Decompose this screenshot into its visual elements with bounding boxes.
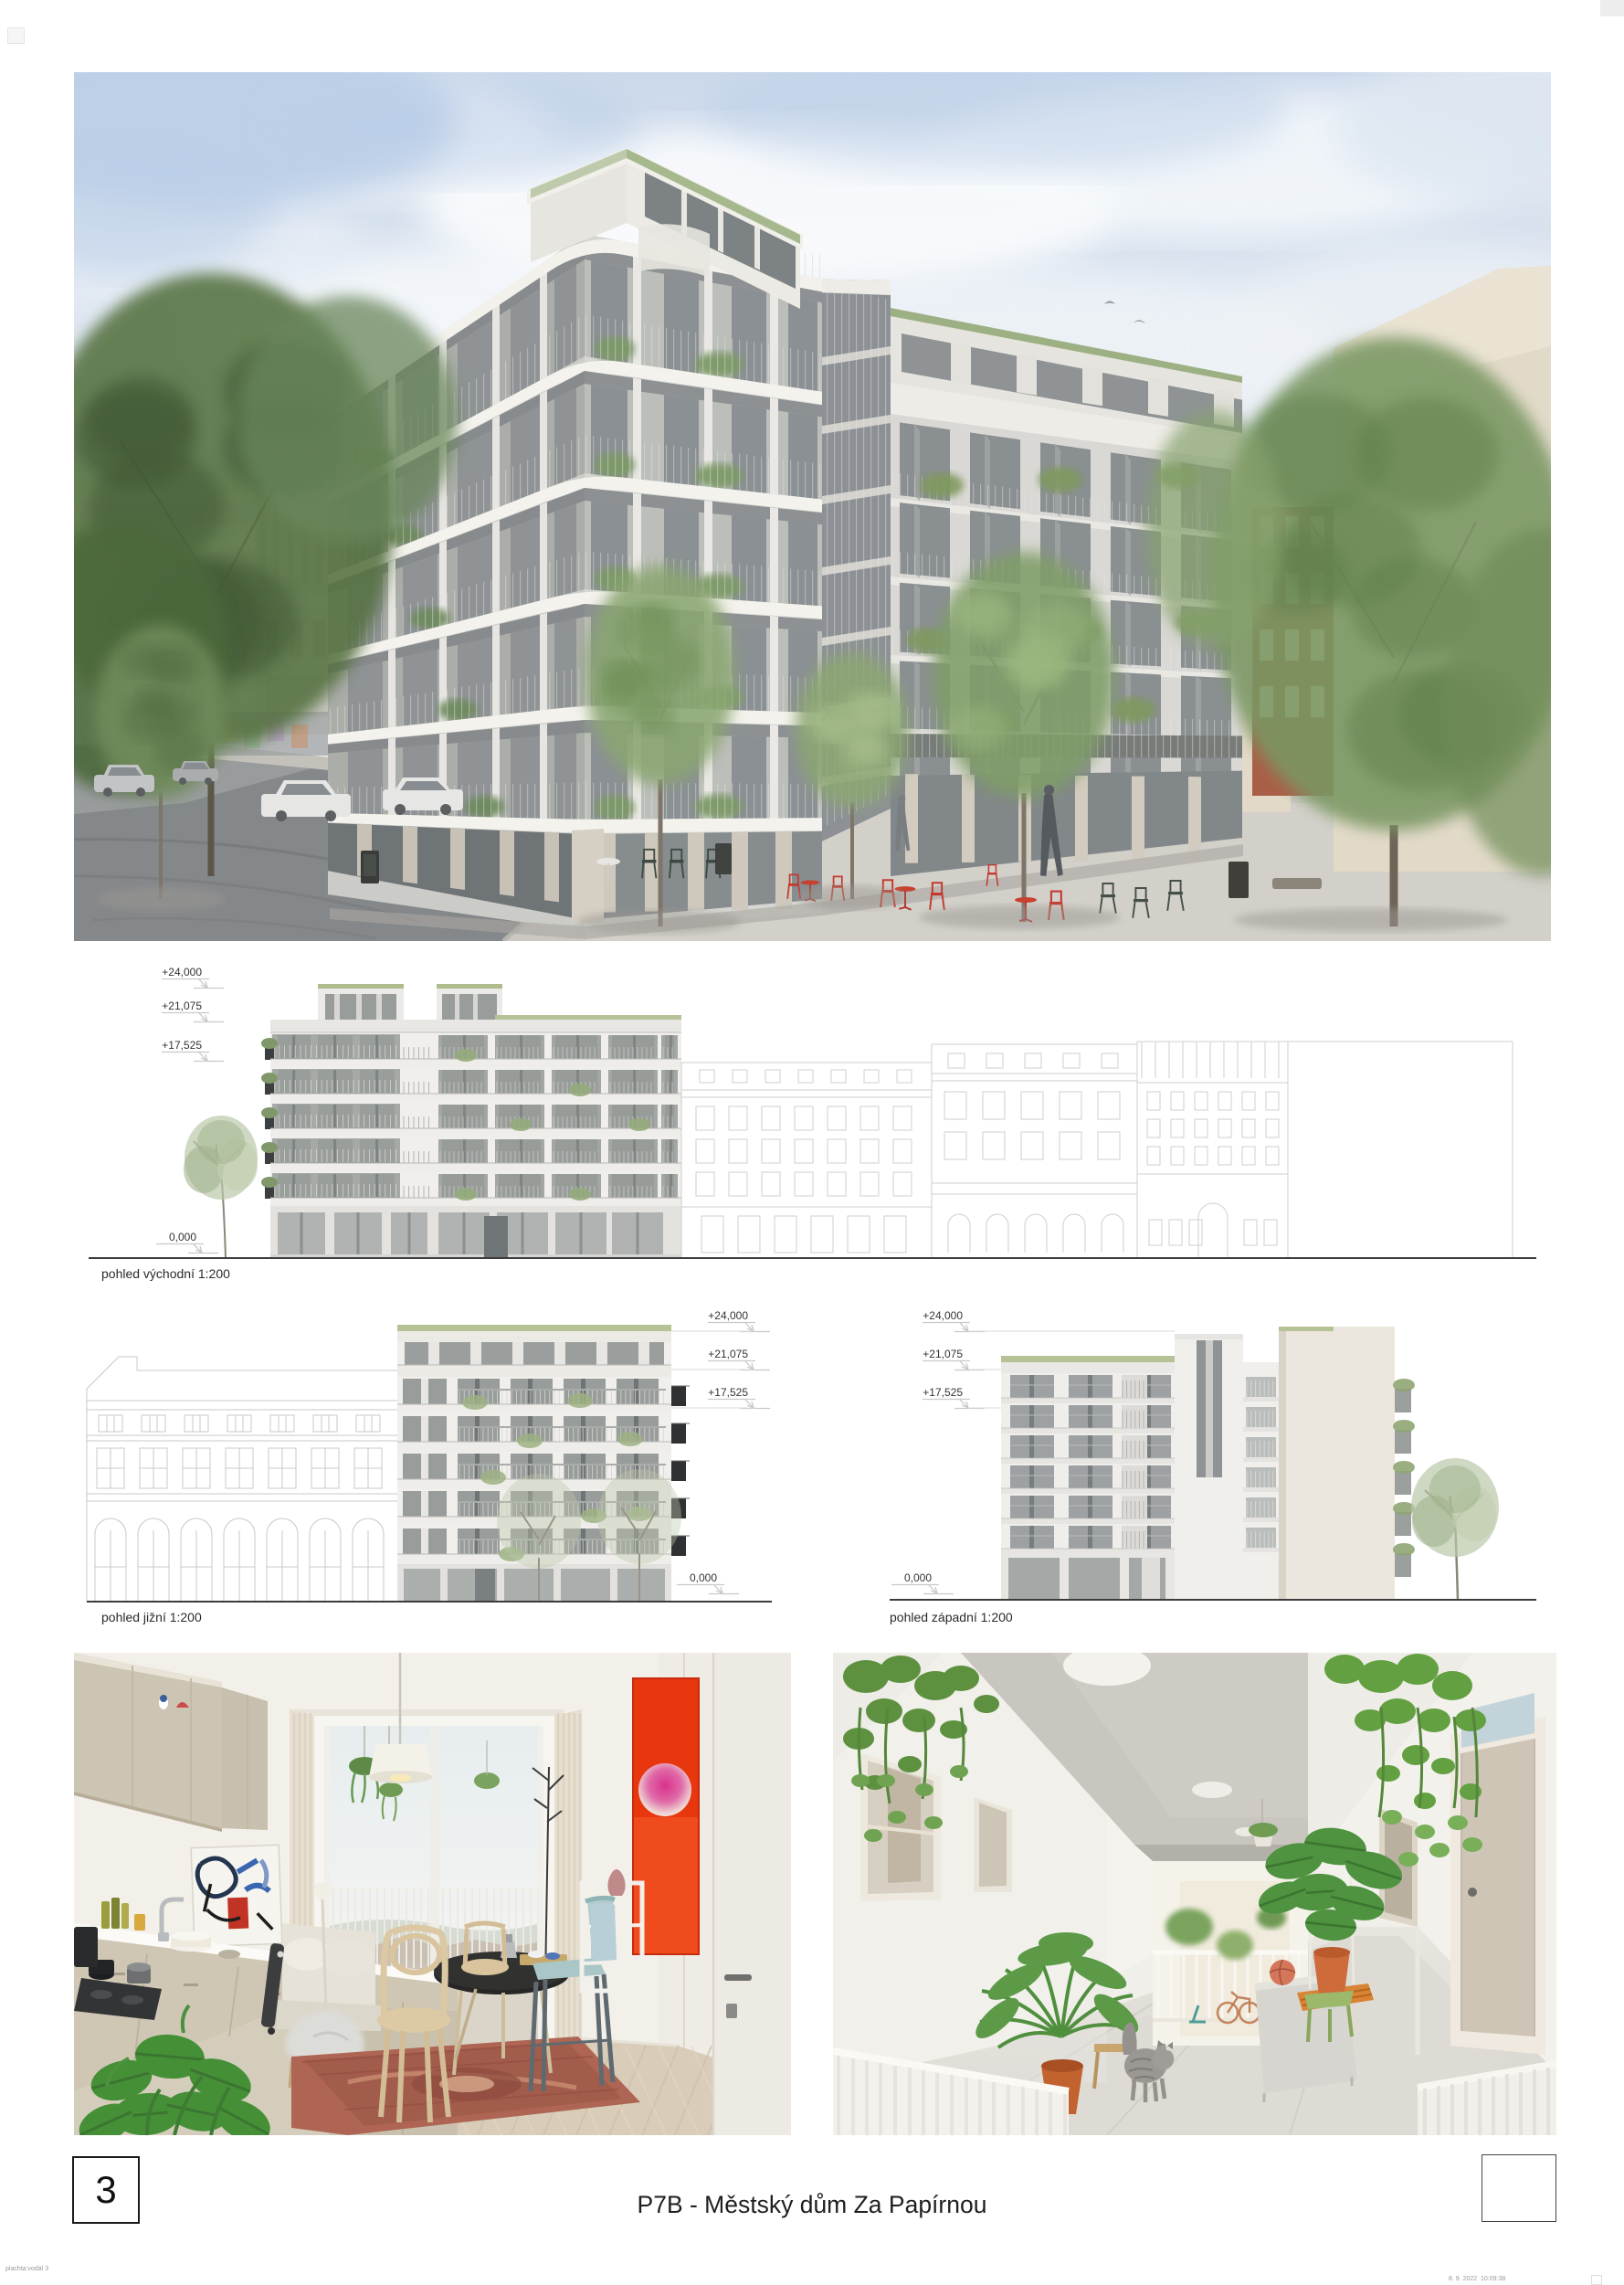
svg-text:+21,075: +21,075 <box>923 1348 963 1360</box>
svg-text:+17,525: +17,525 <box>708 1386 748 1399</box>
svg-text:pohled jižní 1:200: pohled jižní 1:200 <box>101 1610 202 1624</box>
svg-text:0,000: 0,000 <box>690 1571 717 1584</box>
svg-text:pohled západní 1:200: pohled západní 1:200 <box>890 1610 1013 1624</box>
svg-text:0,000: 0,000 <box>169 1231 196 1243</box>
svg-text:+21,075: +21,075 <box>162 1000 202 1012</box>
svg-text:pohled východní 1:200: pohled východní 1:200 <box>101 1266 230 1281</box>
svg-text:+24,000: +24,000 <box>708 1309 748 1322</box>
svg-text:+21,075: +21,075 <box>708 1348 748 1360</box>
svg-text:+17,525: +17,525 <box>923 1386 963 1399</box>
svg-text:+24,000: +24,000 <box>162 966 202 979</box>
svg-text:0,000: 0,000 <box>904 1571 932 1584</box>
svg-text:+24,000: +24,000 <box>923 1309 963 1322</box>
svg-text:+17,525: +17,525 <box>162 1039 202 1052</box>
